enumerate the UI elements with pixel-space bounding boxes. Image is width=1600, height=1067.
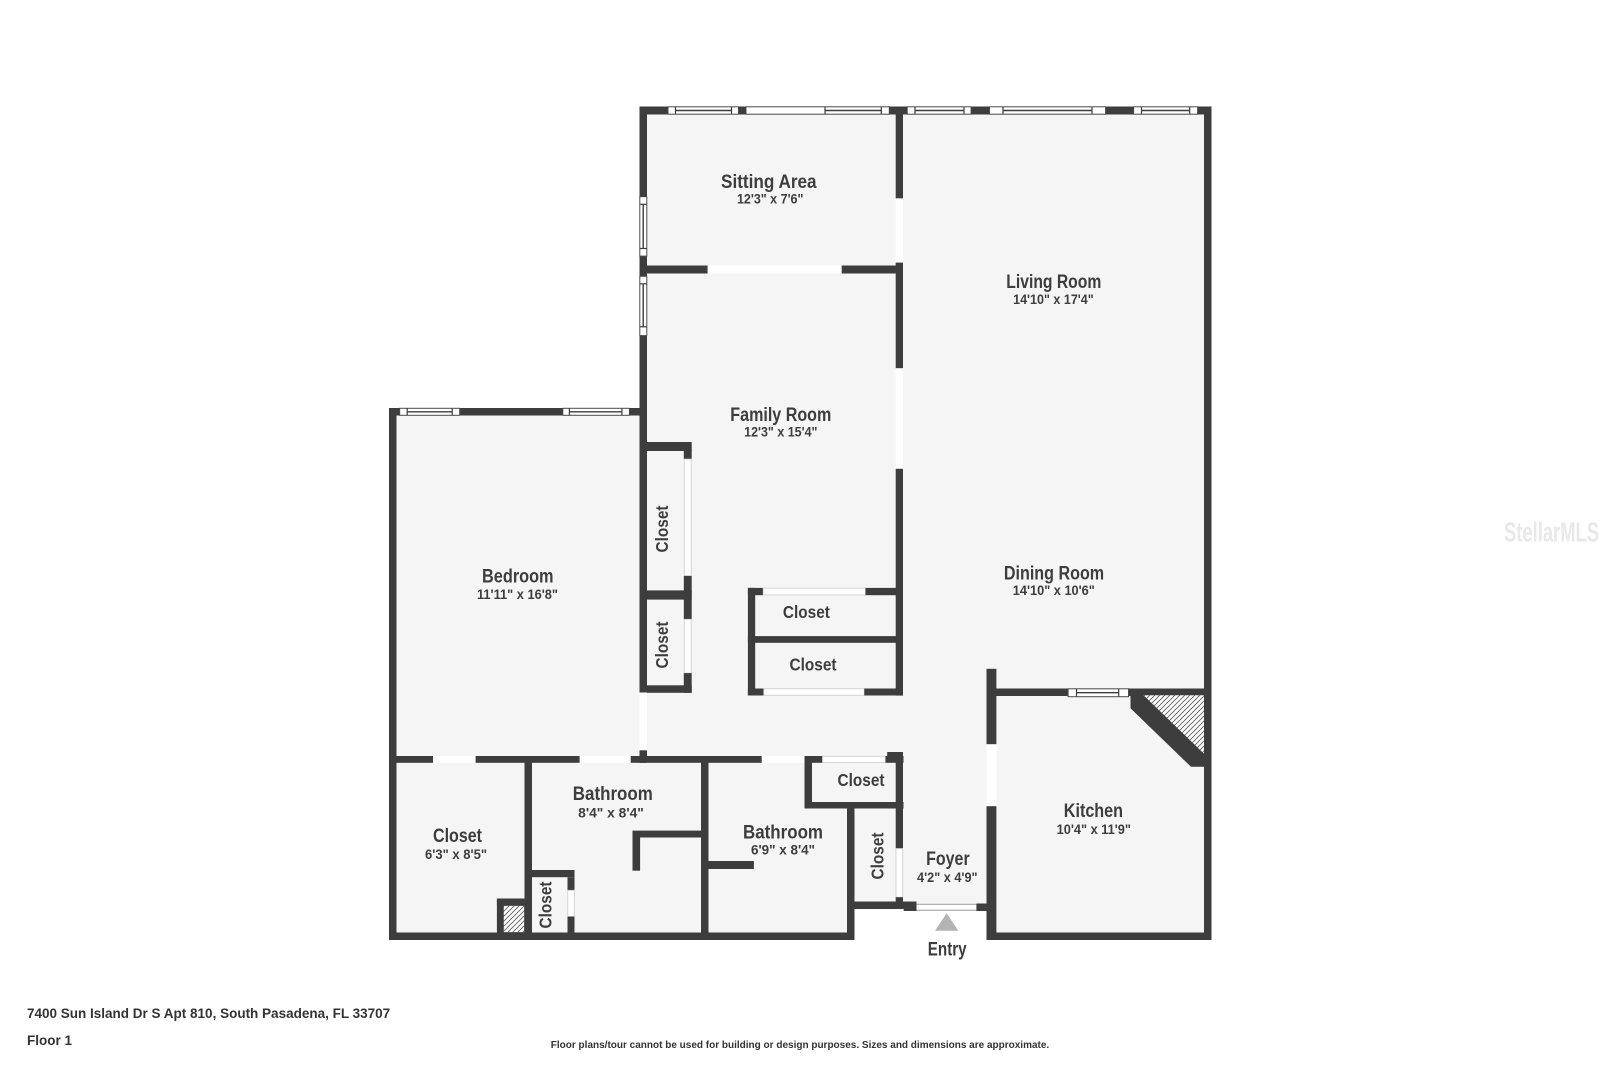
svg-text:6'3" x 8'5": 6'3" x 8'5" <box>425 846 487 862</box>
svg-text:Bedroom: Bedroom <box>482 567 554 588</box>
svg-text:Bathroom: Bathroom <box>743 822 823 843</box>
svg-text:Bathroom: Bathroom <box>573 784 653 805</box>
svg-text:11'11" x 16'8": 11'11" x 16'8" <box>477 586 558 602</box>
svg-text:Foyer: Foyer <box>926 849 970 870</box>
svg-text:Closet: Closet <box>790 655 837 675</box>
svg-text:Closet: Closet <box>783 602 830 622</box>
svg-text:14'10" x 10'6": 14'10" x 10'6" <box>1013 582 1095 598</box>
svg-text:4'2" x 4'9": 4'2" x 4'9" <box>917 869 978 885</box>
svg-text:14'10" x 17'4": 14'10" x 17'4" <box>1013 291 1094 307</box>
svg-text:10'4" x 11'9": 10'4" x 11'9" <box>1057 821 1131 837</box>
svg-text:Closet: Closet <box>652 505 672 552</box>
svg-text:Closet: Closet <box>536 881 556 928</box>
svg-text:Kitchen: Kitchen <box>1064 801 1123 822</box>
svg-text:Closet: Closet <box>433 826 483 847</box>
svg-text:Closet: Closet <box>652 621 672 668</box>
svg-text:Closet: Closet <box>838 770 885 790</box>
svg-text:12'3" x 15'4": 12'3" x 15'4" <box>744 423 817 439</box>
svg-text:Closet: Closet <box>868 832 888 879</box>
svg-text:12'3" x 7'6": 12'3" x 7'6" <box>737 191 804 207</box>
svg-text:8'4" x 8'4": 8'4" x 8'4" <box>578 805 644 821</box>
svg-text:6'9" x 8'4": 6'9" x 8'4" <box>751 842 815 858</box>
svg-text:Entry: Entry <box>928 940 967 961</box>
svg-text:StellarMLS: StellarMLS <box>1504 517 1599 548</box>
